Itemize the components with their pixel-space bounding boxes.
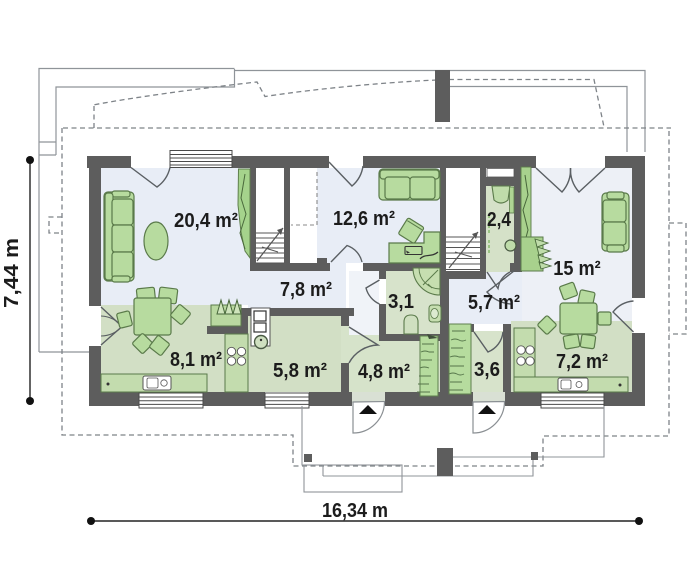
svg-text:3,1: 3,1 bbox=[388, 290, 414, 313]
svg-text:20,4 m²: 20,4 m² bbox=[174, 209, 238, 232]
svg-text:15 m²: 15 m² bbox=[553, 257, 601, 280]
svg-text:5,8 m²: 5,8 m² bbox=[273, 359, 327, 382]
svg-text:16,34 m: 16,34 m bbox=[322, 500, 388, 522]
svg-text:7,2 m²: 7,2 m² bbox=[556, 350, 608, 373]
svg-text:5,7 m²: 5,7 m² bbox=[468, 291, 520, 314]
svg-text:4,8 m²: 4,8 m² bbox=[358, 360, 410, 383]
svg-text:12,6 m²: 12,6 m² bbox=[333, 207, 395, 230]
svg-text:7,44 m: 7,44 m bbox=[1, 238, 23, 308]
svg-text:3,6: 3,6 bbox=[474, 358, 500, 381]
svg-text:7,8 m²: 7,8 m² bbox=[280, 278, 332, 301]
svg-text:8,1 m²: 8,1 m² bbox=[170, 348, 222, 371]
svg-text:2,4: 2,4 bbox=[487, 208, 512, 231]
